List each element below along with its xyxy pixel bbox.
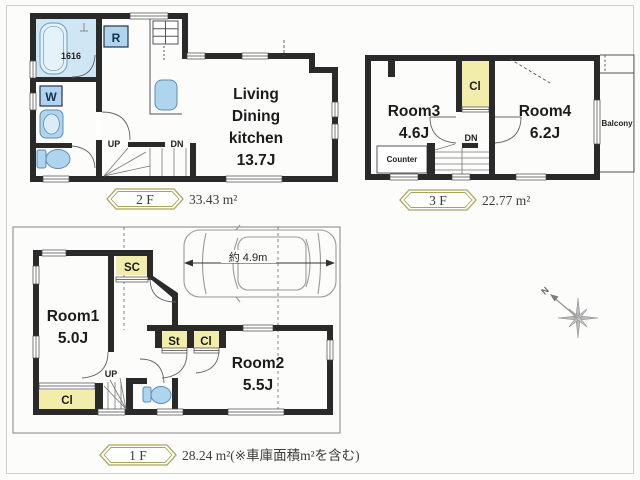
counter-label: Counter xyxy=(387,155,418,164)
dn-label-3f: DN xyxy=(465,133,478,143)
svg-text:kitchen: kitchen xyxy=(229,130,283,147)
svg-text:5.0J: 5.0J xyxy=(58,330,88,347)
bath-size-label: 1616 xyxy=(61,51,81,61)
dn-label-2f: DN xyxy=(171,139,184,149)
floorplan-2f: 1616 W R xyxy=(30,13,338,182)
closet-3f-label: Cl xyxy=(469,81,481,93)
closet-room1-label: Cl xyxy=(61,395,73,407)
floorplan-drawing: 1616 W R xyxy=(0,0,640,480)
closet-hall-label: Cl xyxy=(200,336,212,348)
badge-3f: 3 F xyxy=(400,190,476,210)
svg-text:Dining: Dining xyxy=(232,108,280,125)
stairs-3f xyxy=(435,144,489,174)
shoe-closet-label: SC xyxy=(124,262,140,274)
room3-label: Room3 4.6J xyxy=(388,103,441,142)
toilet-1f xyxy=(143,387,171,404)
area-3f: 22.77 m² xyxy=(482,193,530,208)
compass: N xyxy=(539,285,598,338)
svg-text:Room2: Room2 xyxy=(232,355,285,372)
badge-1f: 1 F xyxy=(100,445,176,465)
car-length-label: 約 4.9m xyxy=(229,250,268,264)
storage-label: St xyxy=(168,336,180,348)
area-1f: 28.24 m²(※車庫面積m²を含む) xyxy=(182,448,360,463)
balcony-label: Balcony xyxy=(601,119,633,128)
svg-text:4.6J: 4.6J xyxy=(399,125,429,142)
svg-text:Living: Living xyxy=(233,86,279,103)
ldk-label: Living Dining kitchen 13.7J xyxy=(229,86,283,169)
kitchen-sink xyxy=(155,80,177,110)
svg-text:Room3: Room3 xyxy=(388,103,441,120)
balcony xyxy=(600,55,634,172)
floorplan-1f: 約 4.9m xyxy=(13,225,340,433)
area-2f: 33.43 m² xyxy=(189,192,237,207)
roof-slope-line xyxy=(510,59,550,83)
badge-3f-label: 3 F xyxy=(429,193,447,208)
svg-text:Room4: Room4 xyxy=(519,103,572,120)
fridge-label: R xyxy=(112,31,121,45)
room2-label: Room2 5.5J xyxy=(232,355,285,394)
svg-text:5.5J: 5.5J xyxy=(243,377,273,394)
north-label: N xyxy=(539,285,551,297)
washer-label: W xyxy=(45,90,57,104)
bathtub xyxy=(40,23,67,74)
badge-2f-label: 2 F xyxy=(136,192,154,207)
room4-label: Room4 6.2J xyxy=(519,103,572,142)
badge-2f: 2 F xyxy=(107,189,183,209)
room1-label: Room1 5.0J xyxy=(47,308,100,347)
stairs-2f xyxy=(104,148,186,176)
up-label-2f: UP xyxy=(108,139,121,149)
floorplan-3f: Cl Balcony Counter xyxy=(365,55,634,180)
car-dimension: 約 4.9m xyxy=(184,250,335,267)
floorplan-page: 1616 W R xyxy=(0,0,640,480)
badge-1f-label: 1 F xyxy=(129,448,147,463)
svg-text:13.7J: 13.7J xyxy=(237,152,276,169)
up-label-1f: UP xyxy=(105,369,118,379)
svg-text:6.2J: 6.2J xyxy=(530,125,560,142)
washbasin xyxy=(40,110,63,138)
stairs-1f xyxy=(104,378,126,409)
closet-3f-front xyxy=(462,107,489,112)
svg-text:Room1: Room1 xyxy=(47,308,100,325)
toilet-2f xyxy=(37,150,70,169)
